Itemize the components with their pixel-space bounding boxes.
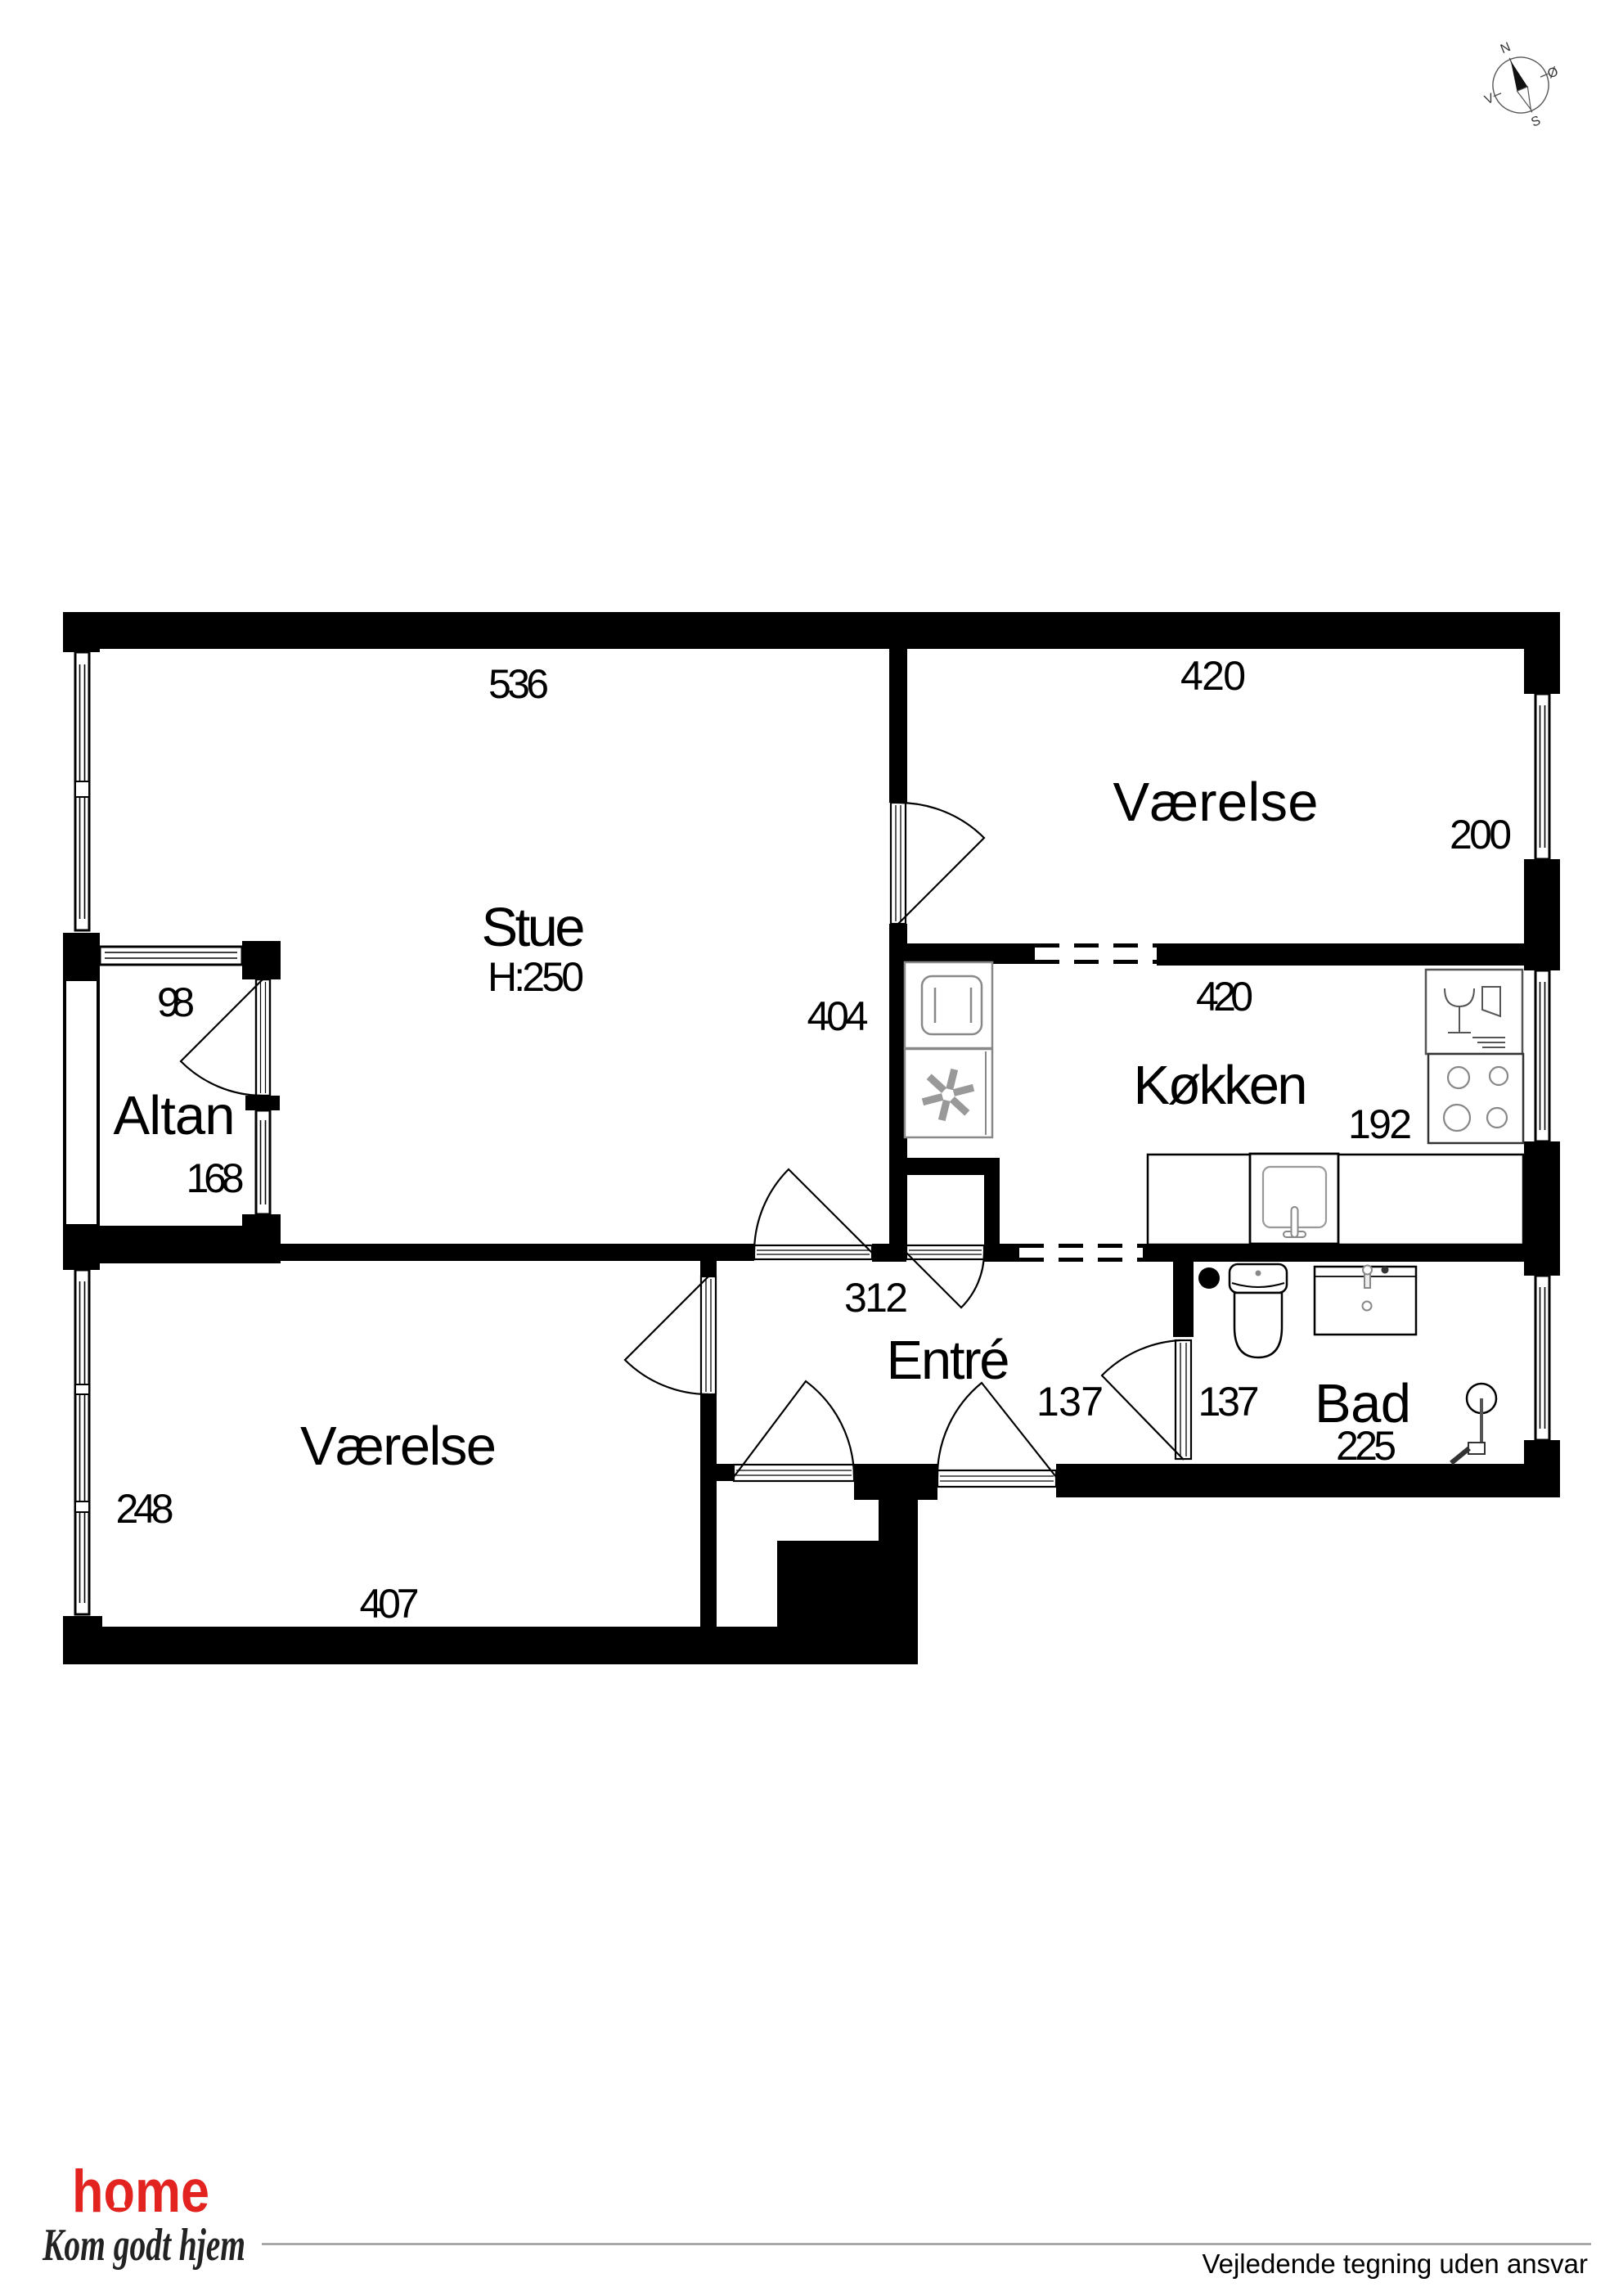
svg-text:137: 137 <box>1198 1379 1260 1425</box>
svg-text:248: 248 <box>116 1486 174 1532</box>
svg-text:Kom godt hjem: Kom godt hjem <box>42 2220 245 2271</box>
svg-text:Værelse: Værelse <box>1113 772 1319 833</box>
svg-text:420: 420 <box>1196 974 1253 1020</box>
svg-text:225: 225 <box>1336 1423 1396 1469</box>
svg-text:137: 137 <box>1036 1379 1104 1425</box>
svg-text:407: 407 <box>360 1581 420 1627</box>
svg-text:Stue: Stue <box>482 897 586 958</box>
svg-text:200: 200 <box>1450 812 1512 858</box>
svg-text:Altan: Altan <box>114 1085 236 1146</box>
svg-text:404: 404 <box>807 993 869 1039</box>
svg-text:Vejledende tegning uden ansvar: Vejledende tegning uden ansvar <box>1202 2249 1588 2279</box>
svg-text:H:250: H:250 <box>488 954 584 1000</box>
svg-text:Værelse: Værelse <box>300 1416 497 1477</box>
svg-text:168: 168 <box>187 1155 245 1201</box>
svg-text:420: 420 <box>1180 653 1246 699</box>
svg-text:Køkken: Køkken <box>1134 1055 1308 1116</box>
svg-text:Entré: Entré <box>887 1330 1010 1391</box>
svg-text:192: 192 <box>1348 1101 1412 1147</box>
svg-text:98: 98 <box>157 979 195 1025</box>
svg-text:536: 536 <box>488 661 549 707</box>
svg-text:home: home <box>72 2159 209 2225</box>
svg-text:312: 312 <box>844 1275 908 1321</box>
